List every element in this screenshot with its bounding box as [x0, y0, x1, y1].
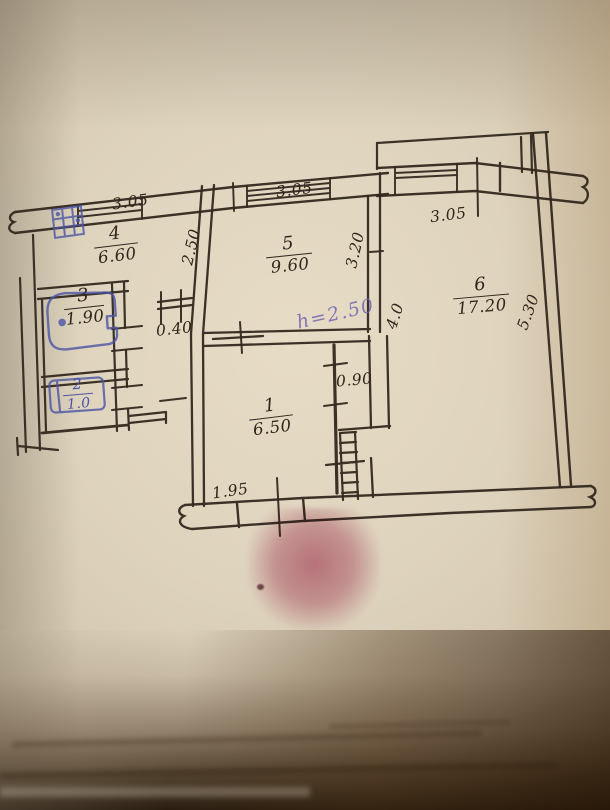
room-5-label: 5 9.60 [259, 232, 319, 277]
paper-edge-highlight [0, 787, 310, 797]
room-2-label: 2 1.0 [55, 375, 102, 413]
ink-stain [248, 508, 380, 630]
room-1-label: 1 6.50 [241, 394, 301, 440]
dimension-corridor-offset: 0.40 [155, 318, 193, 340]
room-3-label: 3 1.90 [57, 284, 111, 329]
top-wall-right [377, 163, 588, 203]
right-wall [533, 133, 571, 487]
room-4-label: 4 6.60 [86, 222, 146, 268]
dimension-door-width: 0.90 [335, 369, 373, 390]
room-number: 2 [55, 375, 100, 394]
floor-plan-photo: 4 6.60 5 9.60 6 17.20 3 1.90 2 1.0 1 6.5… [0, 0, 610, 810]
ink-speck [257, 584, 264, 590]
stairs-icon [326, 432, 364, 500]
room-6-label: 6 17.20 [447, 273, 514, 318]
